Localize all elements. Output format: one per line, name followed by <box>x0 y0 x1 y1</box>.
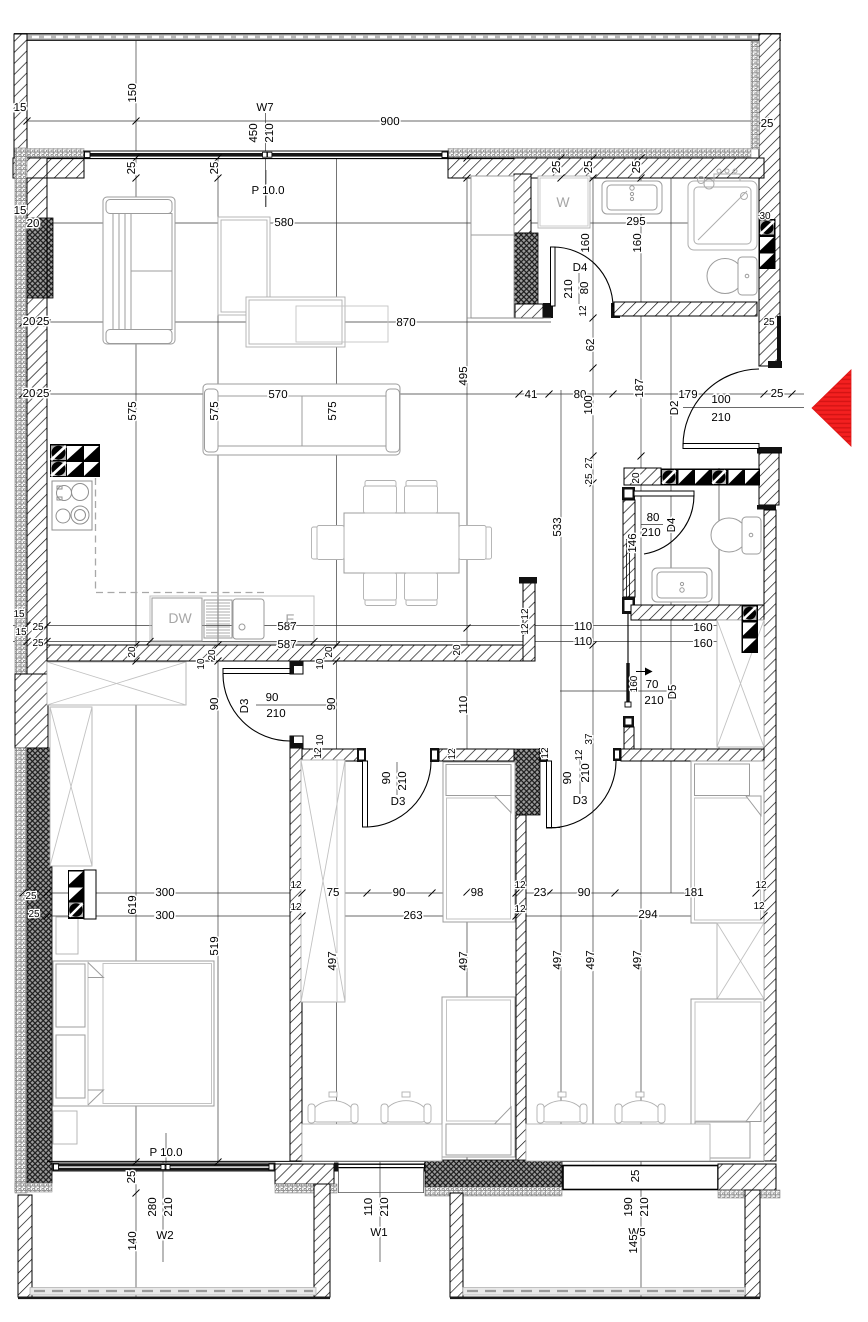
svg-text:20: 20 <box>452 644 463 656</box>
svg-text:210: 210 <box>163 1197 175 1216</box>
svg-text:110: 110 <box>458 696 470 714</box>
svg-text:140: 140 <box>127 1231 139 1250</box>
svg-text:210: 210 <box>711 412 730 424</box>
svg-text:12: 12 <box>447 748 458 760</box>
svg-text:90: 90 <box>578 887 591 899</box>
svg-text:15: 15 <box>13 609 25 620</box>
svg-text:210: 210 <box>639 1197 651 1216</box>
svg-text:150: 150 <box>127 83 139 102</box>
svg-text:20: 20 <box>23 388 36 400</box>
svg-text:519: 519 <box>209 936 221 955</box>
svg-text:W: W <box>556 194 570 210</box>
svg-text:181: 181 <box>684 887 703 899</box>
svg-text:D3: D3 <box>573 795 588 807</box>
svg-text:15: 15 <box>15 627 27 638</box>
svg-text:E: E <box>285 611 294 627</box>
svg-text:D4: D4 <box>666 517 678 532</box>
svg-text:580: 580 <box>274 217 293 229</box>
svg-text:25: 25 <box>630 1170 642 1183</box>
svg-text:160: 160 <box>580 233 592 252</box>
svg-text:25: 25 <box>631 161 643 174</box>
svg-text:900: 900 <box>380 116 399 128</box>
svg-text:12: 12 <box>578 305 589 317</box>
svg-text:W2: W2 <box>156 1230 173 1242</box>
svg-text:25: 25 <box>771 388 784 400</box>
svg-text:10: 10 <box>315 734 326 746</box>
svg-text:25: 25 <box>584 473 595 485</box>
svg-text:210: 210 <box>580 763 592 782</box>
svg-text:15: 15 <box>14 205 27 217</box>
svg-text:30: 30 <box>759 211 771 222</box>
svg-text:25: 25 <box>763 317 775 328</box>
svg-text:D3: D3 <box>239 699 251 714</box>
svg-text:W7: W7 <box>256 102 273 114</box>
svg-text:80: 80 <box>647 512 660 524</box>
svg-text:20: 20 <box>127 646 138 658</box>
svg-text:12: 12 <box>313 747 324 759</box>
svg-text:160: 160 <box>632 233 644 252</box>
svg-text:210: 210 <box>264 123 276 142</box>
svg-text:23: 23 <box>534 887 547 899</box>
svg-text:190: 190 <box>623 1197 635 1216</box>
svg-text:D4: D4 <box>573 262 588 274</box>
svg-text:90: 90 <box>393 887 406 899</box>
svg-text:25: 25 <box>37 388 50 400</box>
svg-text:100: 100 <box>583 395 595 414</box>
svg-text:25: 25 <box>32 638 44 649</box>
svg-text:90: 90 <box>562 772 574 785</box>
svg-text:12: 12 <box>753 901 765 912</box>
svg-text:90: 90 <box>326 698 338 711</box>
svg-text:P 10.0: P 10.0 <box>251 185 284 197</box>
svg-text:587: 587 <box>277 639 296 651</box>
svg-text:110: 110 <box>574 621 592 633</box>
svg-text:20: 20 <box>27 218 40 230</box>
svg-text:187: 187 <box>634 378 646 397</box>
svg-text:25: 25 <box>25 891 37 902</box>
svg-text:90: 90 <box>266 692 279 704</box>
svg-text:D3: D3 <box>391 796 406 808</box>
svg-text:210: 210 <box>644 695 663 707</box>
svg-text:295: 295 <box>626 216 645 228</box>
svg-text:210: 210 <box>266 708 285 720</box>
svg-text:300: 300 <box>155 910 174 922</box>
svg-text:37: 37 <box>584 733 595 745</box>
svg-text:100: 100 <box>711 394 730 406</box>
svg-text:495: 495 <box>458 366 470 385</box>
svg-text:570: 570 <box>268 389 287 401</box>
svg-text:294: 294 <box>638 909 658 921</box>
svg-text:20: 20 <box>631 472 642 484</box>
svg-text:98: 98 <box>471 887 484 899</box>
svg-text:575: 575 <box>127 401 139 420</box>
svg-text:497: 497 <box>585 950 597 969</box>
svg-text:300: 300 <box>155 887 174 899</box>
svg-text:25: 25 <box>32 622 44 633</box>
svg-text:75: 75 <box>327 887 340 899</box>
svg-text:210: 210 <box>563 279 575 298</box>
svg-text:10: 10 <box>315 658 326 670</box>
svg-text:210: 210 <box>397 771 409 790</box>
svg-text:25: 25 <box>126 162 138 175</box>
svg-text:12: 12 <box>514 904 526 915</box>
svg-text:25: 25 <box>209 162 221 175</box>
svg-text:41: 41 <box>525 389 538 401</box>
svg-text:210: 210 <box>641 527 660 539</box>
svg-text:D5: D5 <box>667 685 679 700</box>
svg-text:12: 12 <box>290 880 302 891</box>
svg-text:210: 210 <box>379 1197 391 1216</box>
svg-text:575: 575 <box>327 401 339 420</box>
svg-text:90: 90 <box>381 772 393 785</box>
svg-text:179: 179 <box>678 389 697 401</box>
svg-text:160: 160 <box>629 675 640 692</box>
svg-text:25: 25 <box>551 161 563 174</box>
svg-text:110: 110 <box>363 1198 375 1216</box>
svg-text:870: 870 <box>396 317 415 329</box>
svg-text:20: 20 <box>23 316 36 328</box>
svg-text:533: 533 <box>552 517 564 536</box>
svg-text:25: 25 <box>126 1171 138 1184</box>
svg-text:20: 20 <box>324 646 335 658</box>
svg-text:90: 90 <box>209 698 221 711</box>
svg-text:450: 450 <box>248 123 260 142</box>
svg-text:146: 146 <box>627 533 639 552</box>
svg-text:12: 12 <box>520 623 531 635</box>
svg-text:497: 497 <box>552 950 564 969</box>
svg-text:20: 20 <box>207 649 218 661</box>
svg-text:497: 497 <box>632 950 644 969</box>
svg-text:145: 145 <box>628 1234 640 1253</box>
svg-text:W1: W1 <box>370 1227 387 1239</box>
svg-text:160: 160 <box>693 638 712 650</box>
svg-text:110: 110 <box>574 636 592 648</box>
svg-text:575: 575 <box>209 401 221 420</box>
svg-text:15: 15 <box>14 102 27 114</box>
svg-text:25: 25 <box>583 161 595 174</box>
svg-text:280: 280 <box>147 1197 159 1216</box>
svg-text:10: 10 <box>196 658 207 670</box>
svg-text:497: 497 <box>458 951 470 970</box>
svg-text:DW: DW <box>168 610 192 626</box>
svg-text:12: 12 <box>540 747 551 759</box>
svg-text:160: 160 <box>693 622 712 634</box>
svg-text:12: 12 <box>514 880 526 891</box>
svg-text:12: 12 <box>574 749 585 761</box>
svg-text:80: 80 <box>579 282 591 295</box>
svg-text:P 10.0: P 10.0 <box>149 1147 182 1159</box>
svg-text:62: 62 <box>585 339 597 352</box>
svg-text:497: 497 <box>327 951 339 970</box>
svg-text:12: 12 <box>290 902 302 913</box>
svg-text:27: 27 <box>584 457 595 469</box>
svg-text:D2: D2 <box>669 401 681 416</box>
svg-text:25: 25 <box>761 118 774 130</box>
svg-text:70: 70 <box>646 679 659 691</box>
svg-text:25: 25 <box>28 909 40 920</box>
svg-text:12: 12 <box>520 608 531 620</box>
svg-text:12: 12 <box>755 880 767 891</box>
svg-text:619: 619 <box>127 895 139 914</box>
svg-text:25: 25 <box>37 316 50 328</box>
svg-text:263: 263 <box>403 910 422 922</box>
